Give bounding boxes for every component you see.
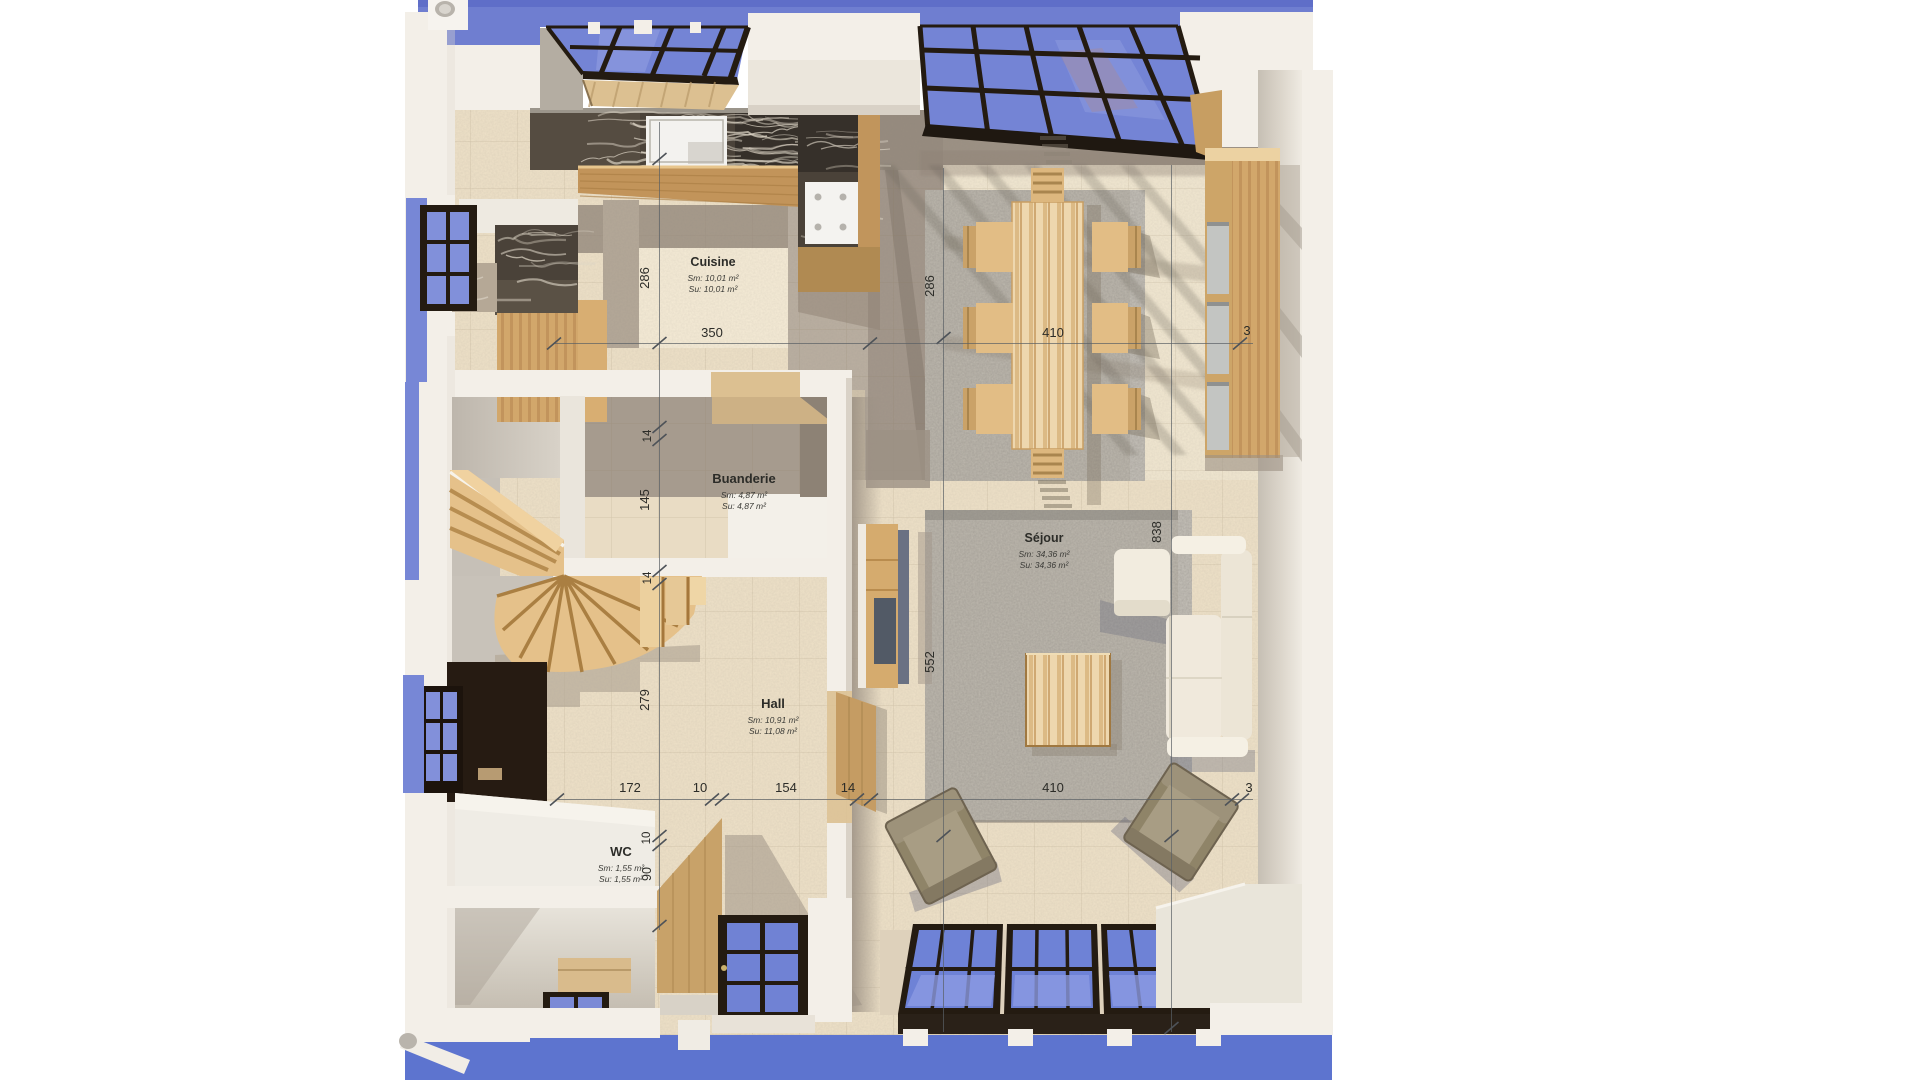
svg-text:14: 14 xyxy=(841,780,855,795)
svg-text:552: 552 xyxy=(922,651,937,673)
svg-text:172: 172 xyxy=(619,780,641,795)
svg-text:279: 279 xyxy=(637,689,652,711)
svg-text:10: 10 xyxy=(693,780,707,795)
svg-text:410: 410 xyxy=(1042,780,1064,795)
svg-text:14: 14 xyxy=(642,571,654,584)
svg-text:Sm: 1,55 m²: Sm: 1,55 m² xyxy=(598,863,645,873)
svg-text:Su: 34,36 m²: Su: 34,36 m² xyxy=(1020,560,1070,570)
svg-text:WC: WC xyxy=(610,844,632,859)
svg-text:838: 838 xyxy=(1149,521,1164,543)
svg-text:Séjour: Séjour xyxy=(1025,531,1064,545)
svg-text:Su: 10,01 m²: Su: 10,01 m² xyxy=(689,284,739,294)
svg-text:154: 154 xyxy=(775,780,797,795)
svg-text:286: 286 xyxy=(922,275,937,297)
svg-text:Su: 1,55 m²: Su: 1,55 m² xyxy=(599,874,644,884)
svg-text:410: 410 xyxy=(1042,325,1064,340)
svg-text:10: 10 xyxy=(641,832,653,845)
svg-text:286: 286 xyxy=(637,267,652,289)
svg-text:Sm: 10,01 m²: Sm: 10,01 m² xyxy=(687,273,739,283)
svg-text:Sm: 10,91 m²: Sm: 10,91 m² xyxy=(747,715,799,725)
svg-text:145: 145 xyxy=(637,489,652,511)
svg-text:Su: 11,08 m²: Su: 11,08 m² xyxy=(749,726,798,736)
svg-text:350: 350 xyxy=(701,325,723,340)
svg-text:Su: 4,87 m²: Su: 4,87 m² xyxy=(722,501,767,511)
svg-text:14: 14 xyxy=(642,429,654,442)
svg-text:Sm: 4,87 m²: Sm: 4,87 m² xyxy=(721,490,768,500)
svg-text:Sm: 34,36 m²: Sm: 34,36 m² xyxy=(1018,549,1070,559)
svg-text:Hall: Hall xyxy=(761,696,785,711)
svg-text:3: 3 xyxy=(1245,780,1252,795)
svg-text:Cuisine: Cuisine xyxy=(690,255,735,269)
svg-text:3: 3 xyxy=(1243,323,1250,338)
svg-text:Buanderie: Buanderie xyxy=(712,471,776,486)
